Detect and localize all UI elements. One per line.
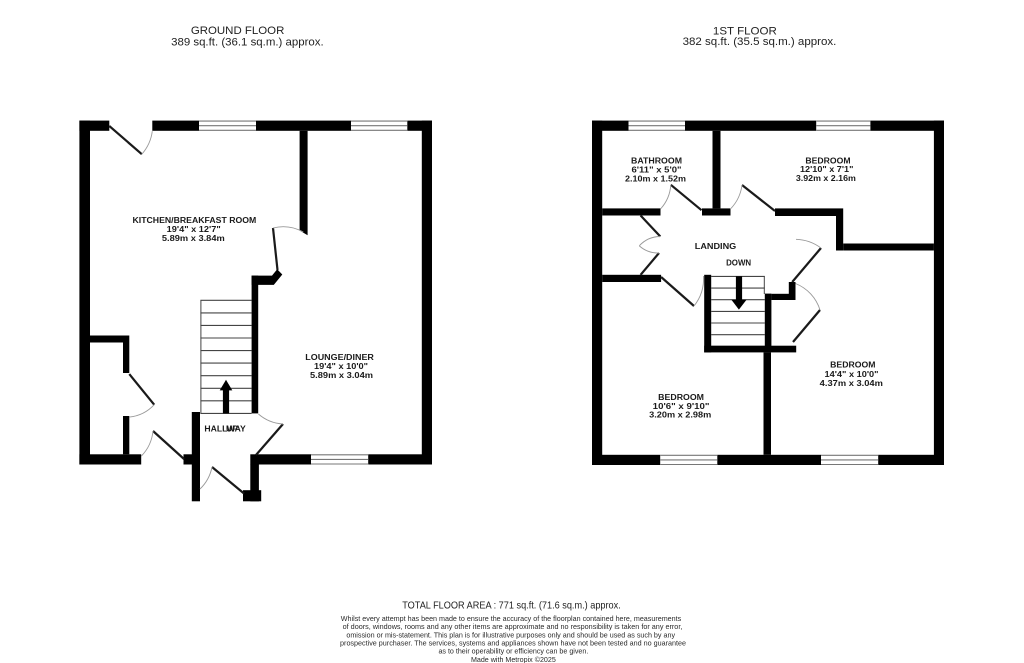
svg-text:2.10m x 1.52m: 2.10m x 1.52m [625,174,686,184]
svg-text:LANDING: LANDING [695,241,737,251]
svg-text:389 sq.ft. (36.1 sq.m.) approx: 389 sq.ft. (36.1 sq.m.) approx. [171,36,324,48]
svg-text:TOTAL FLOOR AREA : 771 sq.ft.: TOTAL FLOOR AREA : 771 sq.ft. (71.6 sq.m… [402,601,621,612]
svg-text:GROUND FLOOR: GROUND FLOOR [191,25,285,37]
svg-text:DOWN: DOWN [726,258,751,267]
svg-text:3.92m x 2.16m: 3.92m x 2.16m [796,173,856,183]
svg-text:5.89m x 3.84m: 5.89m x 3.84m [162,233,225,243]
svg-text:4.37m x 3.04m: 4.37m x 3.04m [820,378,884,388]
svg-text:3.20m x 2.98m: 3.20m x 2.98m [649,410,712,420]
svg-text:5.89m x 3.04m: 5.89m x 3.04m [310,370,373,380]
svg-text:382 sq.ft. (35.5 sq.m.) approx: 382 sq.ft. (35.5 sq.m.) approx. [683,36,837,48]
svg-text:Made with Metropix ©2025: Made with Metropix ©2025 [471,655,556,663]
svg-text:UP: UP [226,424,238,434]
